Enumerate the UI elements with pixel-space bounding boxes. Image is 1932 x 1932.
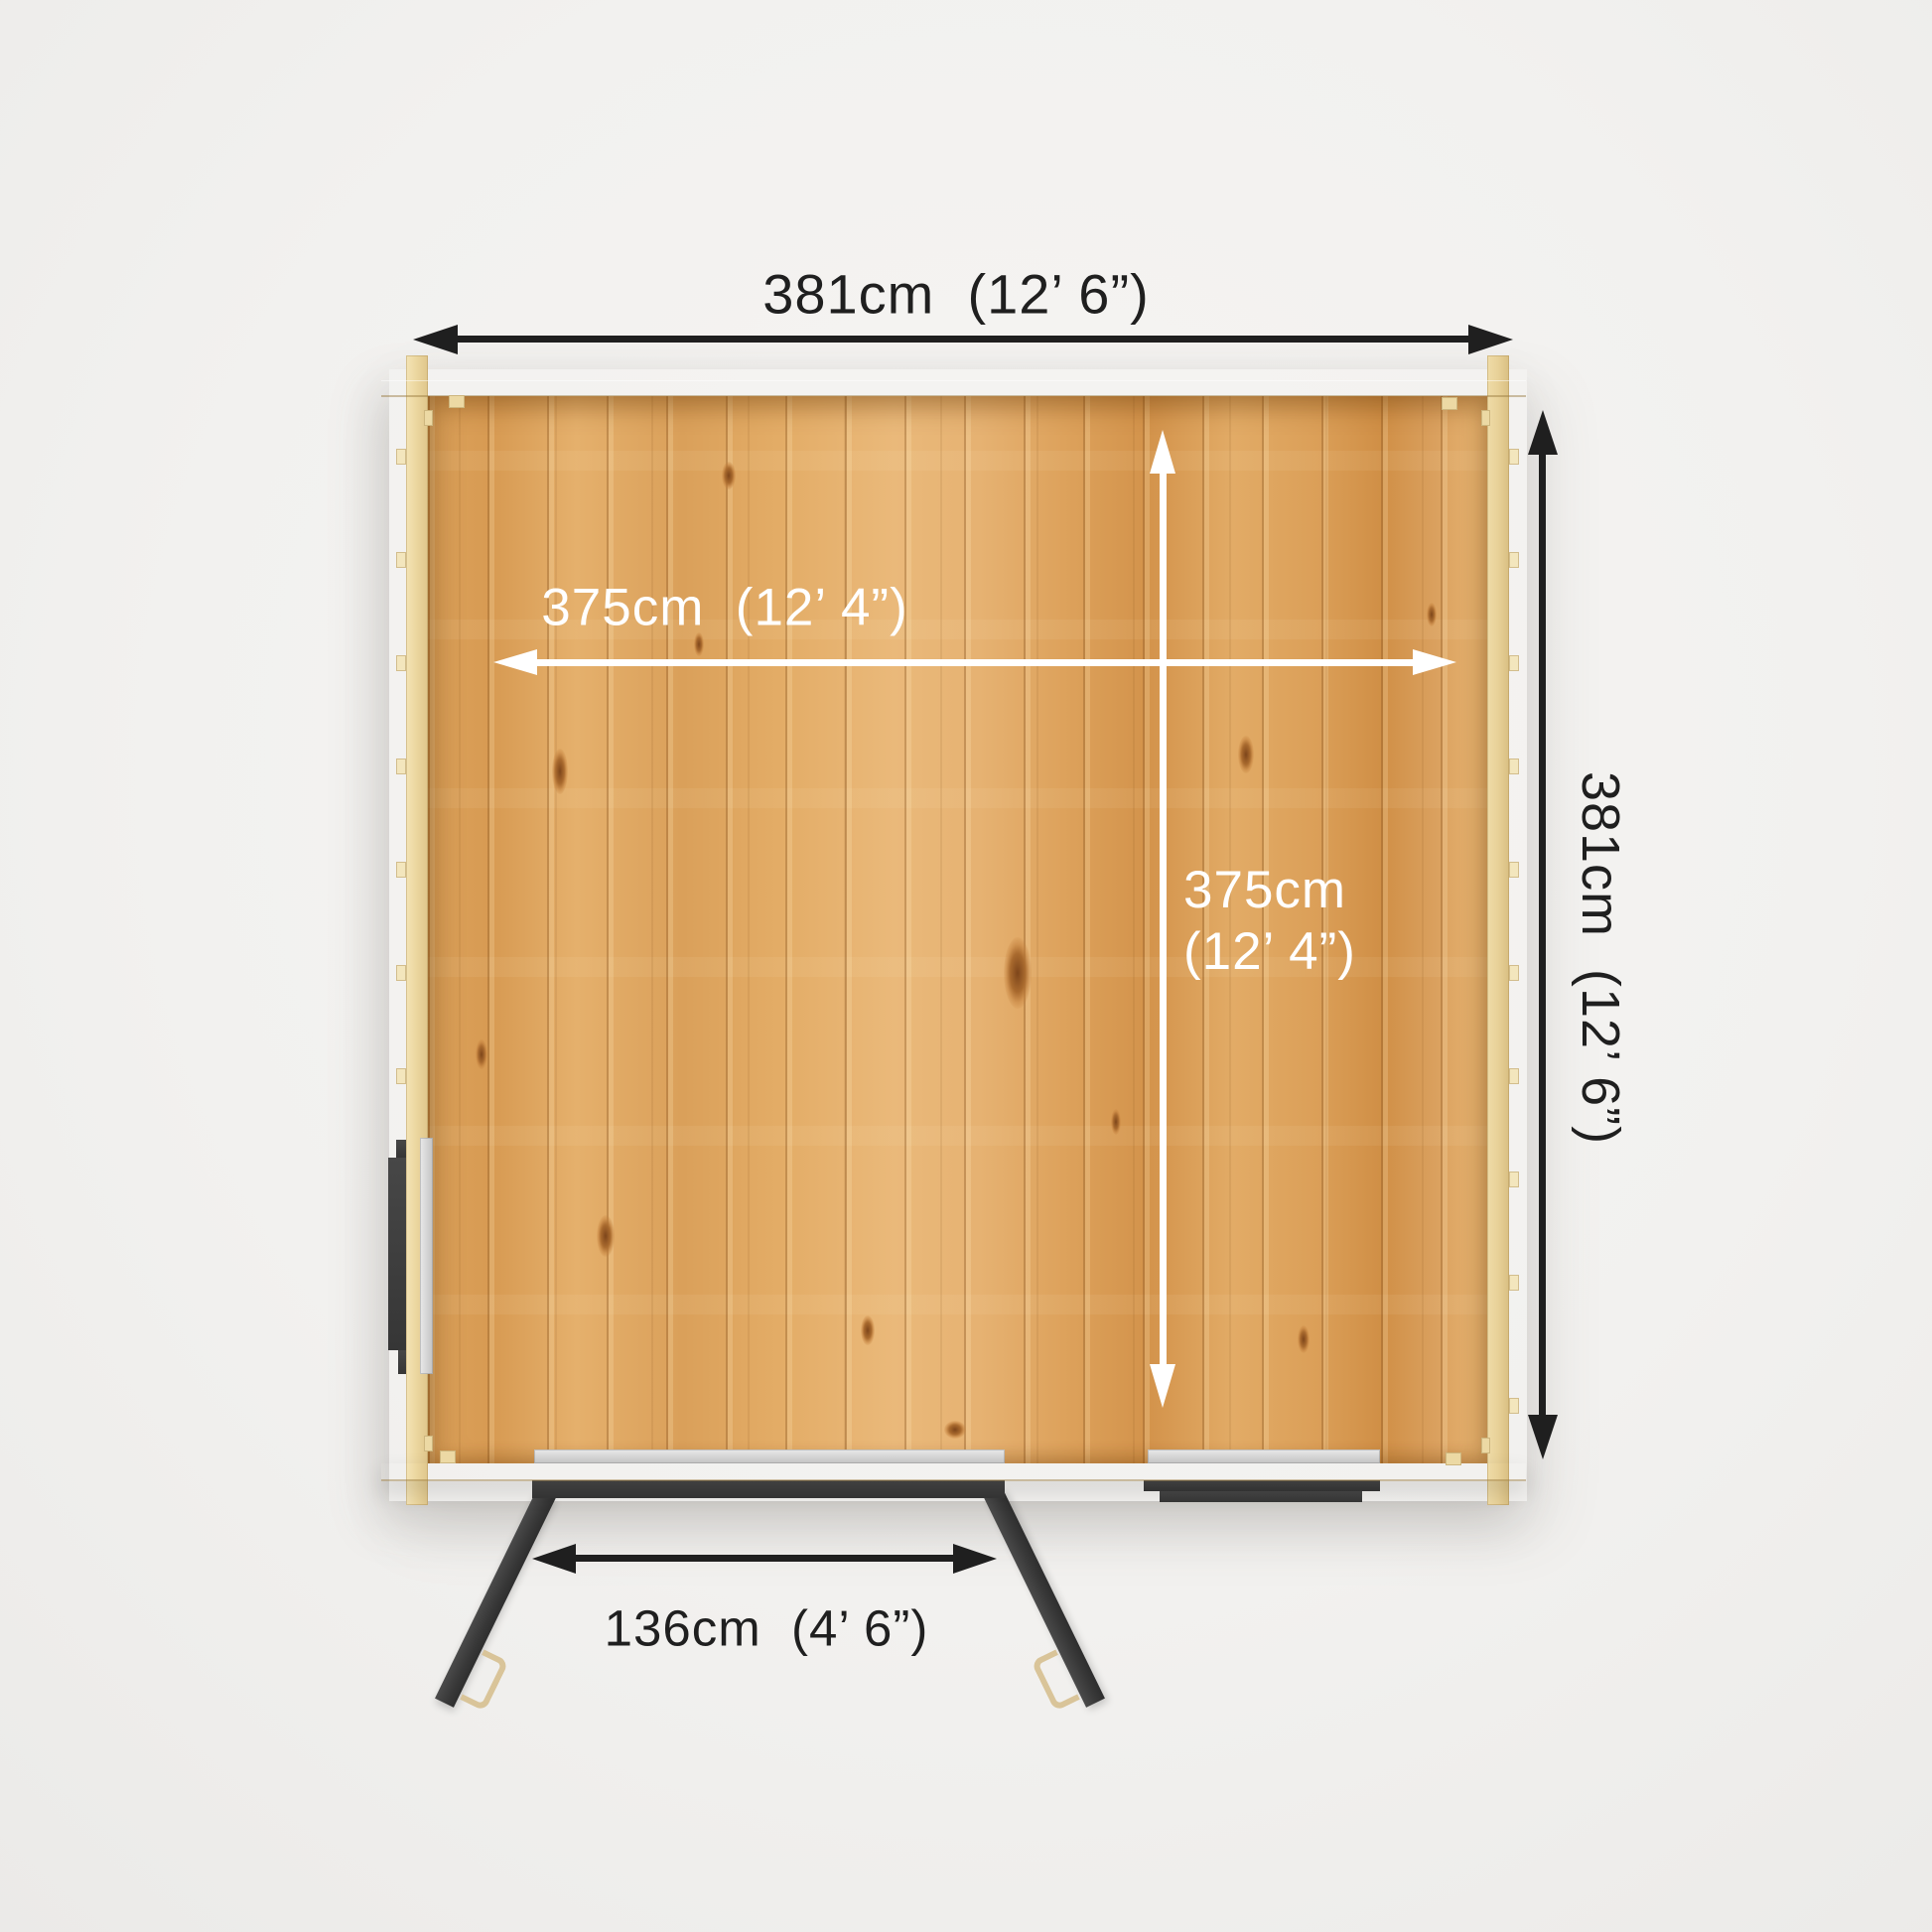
log-end-tab: [396, 655, 406, 671]
internal-depth-label-line2: (12’ 4”): [1183, 921, 1356, 983]
internal-depth-label-line1: 375cm: [1183, 860, 1356, 921]
door-opening-arrowhead-left-icon: [532, 1544, 576, 1574]
door-threshold: [532, 1480, 1005, 1498]
log-end-tab: [1509, 1172, 1519, 1187]
corner-joint-block: [424, 410, 433, 426]
bottom-beam: [381, 1463, 1526, 1481]
door-sill: [534, 1449, 1005, 1463]
log-end-tab: [1509, 862, 1519, 878]
internal-depth-arrow: [1160, 472, 1167, 1366]
cabin-plan-diagram: 375cm (12’ 4”) 375cm (12’ 4”) 381cm (12’…: [0, 0, 1932, 1932]
log-end-tab: [1509, 1068, 1519, 1084]
wood-knot: [722, 462, 736, 489]
log-end-tab: [396, 862, 406, 878]
corner-joint-block: [1481, 1438, 1490, 1453]
wood-knot: [476, 1039, 487, 1069]
door-right-handle-icon: [1031, 1649, 1080, 1712]
door-opening-arrow: [574, 1555, 955, 1562]
log-end-tab: [1509, 1398, 1519, 1414]
internal-depth-arrowhead-bottom-icon: [1150, 1364, 1175, 1408]
log-end-tab: [396, 449, 406, 465]
log-end-tab: [1509, 1275, 1519, 1291]
overall-width-arrowhead-right-icon: [1468, 325, 1513, 354]
right-window-sill: [1148, 1449, 1380, 1463]
log-end-tab: [1509, 759, 1519, 774]
door-left-handle-icon: [460, 1649, 509, 1712]
overall-width-label: 381cm (12’ 6”): [762, 262, 1150, 327]
wood-knot: [552, 749, 568, 794]
log-end-tab: [1509, 552, 1519, 568]
wood-knot: [944, 1421, 966, 1439]
corner-joint-block: [440, 1450, 456, 1463]
internal-depth-arrowhead-top-icon: [1150, 430, 1175, 474]
log-end-tab: [396, 965, 406, 981]
corner-joint-block: [424, 1436, 433, 1451]
internal-width-arrowhead-left-icon: [493, 649, 537, 675]
overall-depth-arrow: [1539, 453, 1546, 1417]
wood-knot: [597, 1215, 615, 1257]
top-beam: [381, 380, 1526, 397]
left-window-glazing: [420, 1138, 433, 1374]
internal-width-arrow: [535, 659, 1415, 666]
wood-knot: [861, 1315, 875, 1345]
overall-width-arrowhead-left-icon: [413, 325, 458, 354]
overall-depth-label: 381cm (12’ 6”): [1570, 771, 1631, 1145]
log-end-tab: [396, 1068, 406, 1084]
internal-depth-label: 375cm (12’ 4”): [1183, 860, 1356, 983]
internal-width-label: 375cm (12’ 4”): [541, 578, 907, 638]
log-end-tab: [1509, 449, 1519, 465]
right-window-sash: [1144, 1480, 1380, 1491]
right-window-sash-step: [1160, 1491, 1362, 1502]
overall-depth-arrowhead-top-icon: [1528, 410, 1558, 455]
log-end-tab: [396, 759, 406, 774]
door-right: [984, 1488, 1105, 1707]
corner-joint-block: [449, 395, 465, 408]
log-end-tab: [1509, 965, 1519, 981]
wood-knot: [1238, 736, 1254, 773]
corner-joint-block: [1481, 410, 1490, 426]
overall-depth-arrowhead-bottom-icon: [1528, 1415, 1558, 1459]
wood-knot: [1004, 937, 1032, 1009]
log-end-tab: [396, 552, 406, 568]
door-opening-label: 136cm (4’ 6”): [605, 1599, 929, 1658]
wood-knot: [1111, 1109, 1121, 1135]
log-end-tab: [1509, 655, 1519, 671]
wood-knot: [1427, 603, 1437, 626]
right-wall: [1487, 355, 1509, 1505]
door-opening-arrowhead-right-icon: [953, 1544, 997, 1574]
corner-joint-block: [1442, 397, 1457, 410]
wood-knot: [1298, 1325, 1310, 1353]
door-left: [435, 1488, 556, 1707]
overall-width-arrow: [456, 336, 1470, 343]
internal-width-arrowhead-right-icon: [1413, 649, 1456, 675]
corner-joint-block: [1446, 1452, 1461, 1465]
